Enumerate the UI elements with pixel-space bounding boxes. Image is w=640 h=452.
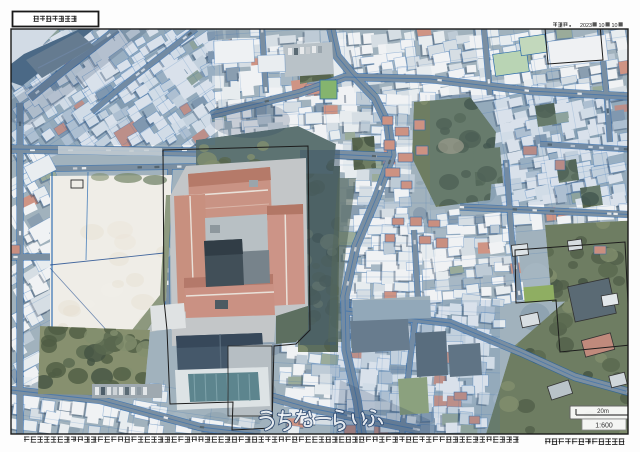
- svg-text:10: 10: [599, 23, 605, 29]
- svg-text:2023: 2023: [580, 23, 592, 29]
- svg-text:10: 10: [612, 23, 618, 29]
- svg-text:1:600: 1:600: [595, 423, 613, 430]
- svg-text:20m: 20m: [597, 409, 609, 415]
